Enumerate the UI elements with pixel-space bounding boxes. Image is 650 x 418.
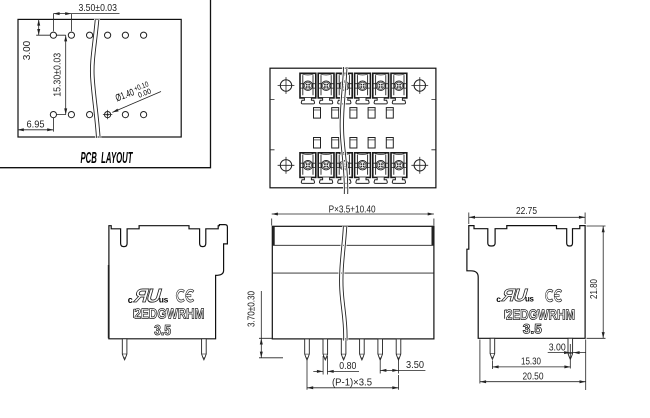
svg-text:15.30±0.03: 15.30±0.03 (52, 53, 64, 97)
svg-text:3.70±0.30: 3.70±0.30 (245, 291, 257, 327)
svg-text:6.95: 6.95 (27, 118, 45, 130)
svg-text:3.50: 3.50 (406, 359, 424, 371)
svg-text:20.50: 20.50 (523, 370, 544, 382)
svg-text:0.80: 0.80 (339, 360, 356, 372)
svg-text:22.75: 22.75 (516, 205, 537, 217)
svg-text:21.80: 21.80 (588, 279, 600, 299)
svg-text:3.00: 3.00 (21, 41, 33, 61)
svg-text:3.5: 3.5 (523, 320, 542, 336)
svg-text:15.30: 15.30 (521, 355, 541, 367)
svg-text:3.00: 3.00 (549, 341, 566, 353)
svg-text:P×3.5+10.40: P×3.5+10.40 (329, 203, 376, 215)
svg-text:2EDGWRHM: 2EDGWRHM (135, 307, 205, 323)
svg-text:PCB LAYOUT: PCB LAYOUT (81, 150, 134, 167)
svg-text:3.5: 3.5 (154, 323, 171, 339)
svg-text:(P-1)×3.5: (P-1)×3.5 (332, 377, 372, 389)
svg-text:3.50±0.03: 3.50±0.03 (78, 2, 117, 14)
